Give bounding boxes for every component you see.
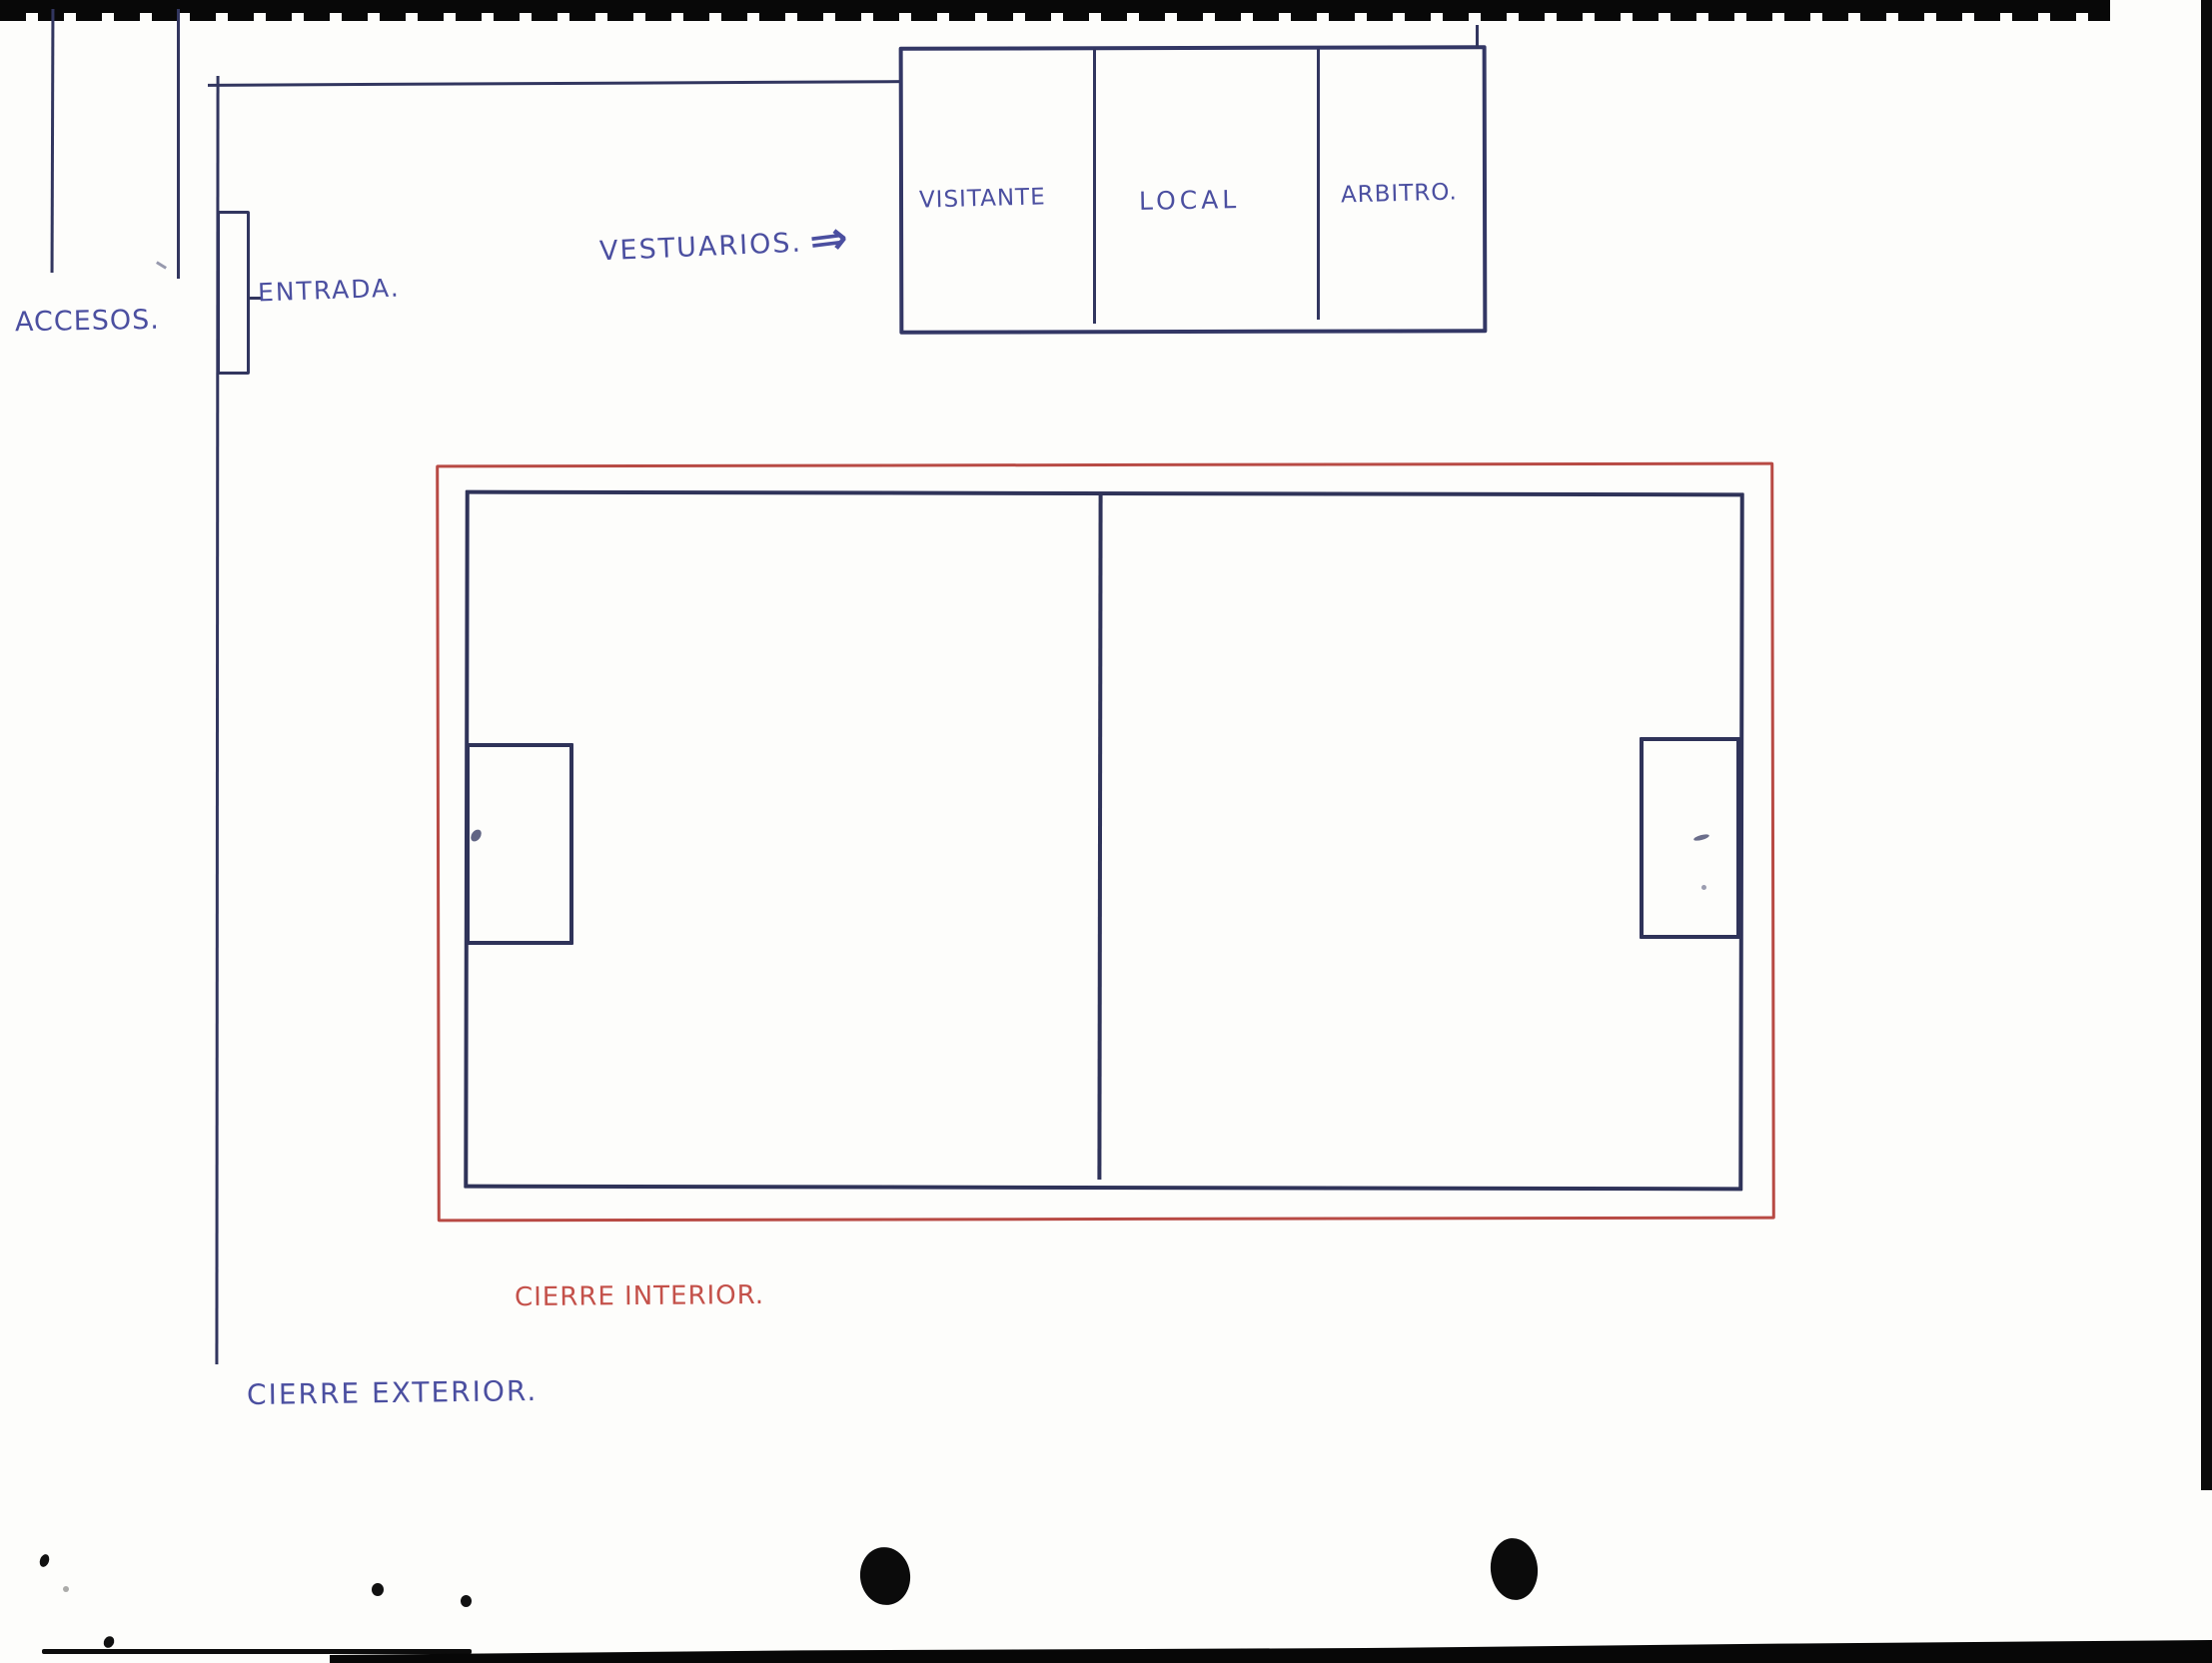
ink-speck [38, 1553, 51, 1568]
hole-punch-mark-left [856, 1544, 914, 1608]
ink-speck [461, 1595, 472, 1607]
ink-speck [372, 1583, 384, 1596]
vestuarios-label: VESTUARIOS. [598, 228, 802, 268]
ink-speck [63, 1586, 69, 1592]
entrada-label: ENTRADA. [258, 274, 402, 308]
pitch-outline [464, 490, 1743, 1192]
local-room-label: LOCAL [1139, 185, 1241, 216]
arrow-right-icon: ⇒ [806, 210, 851, 268]
cierre-exterior-label: CIERRE EXTERIOR. [247, 1374, 539, 1411]
scan-right-edge-strip [2201, 0, 2212, 1490]
sketch-canvas: ACCESOS. ENTRADA. VESTUARIOS. ⇒ VISITANT… [0, 0, 2212, 1663]
goal-box-right [1640, 737, 1740, 939]
scan-top-bar-teeth [0, 13, 2110, 21]
changing-rooms-corner-tick [1476, 25, 1479, 49]
accesos-label: ACCESOS. [15, 305, 160, 339]
changing-rooms-divider-1 [1093, 49, 1096, 324]
corridor-end-tick [156, 261, 167, 269]
arbitro-room-label: ARBITRO. [1341, 179, 1458, 208]
changing-rooms-divider-2 [1317, 49, 1320, 320]
scan-bottom-black-bar [330, 1640, 2212, 1663]
visitante-room-label: VISITANTE [919, 184, 1046, 213]
goal-box-left [466, 743, 573, 945]
scan-bottom-thin-line [42, 1649, 472, 1654]
entrance-door [217, 211, 250, 375]
scan-top-black-bar [0, 0, 2110, 13]
access-corridor-line-right [177, 9, 180, 279]
hole-punch-mark-right [1488, 1536, 1541, 1603]
access-corridor-line-left [51, 9, 55, 273]
ink-speck [102, 1634, 117, 1649]
exterior-fence-top-line [208, 80, 902, 87]
cierre-interior-label: CIERRE INTERIOR. [515, 1280, 764, 1312]
ink-speck [1701, 885, 1706, 890]
